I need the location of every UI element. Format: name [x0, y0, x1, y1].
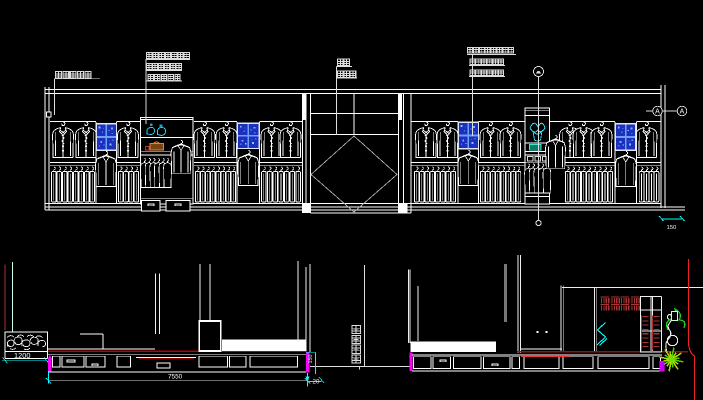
- svg-text:20: 20: [313, 379, 320, 386]
- svg-text:150: 150: [667, 225, 678, 231]
- svg-text:150: 150: [308, 355, 314, 364]
- svg-text:A: A: [680, 109, 685, 116]
- svg-text:1200: 1200: [14, 351, 30, 360]
- svg-text:7550: 7550: [168, 374, 183, 381]
- svg-text:A: A: [655, 109, 660, 116]
